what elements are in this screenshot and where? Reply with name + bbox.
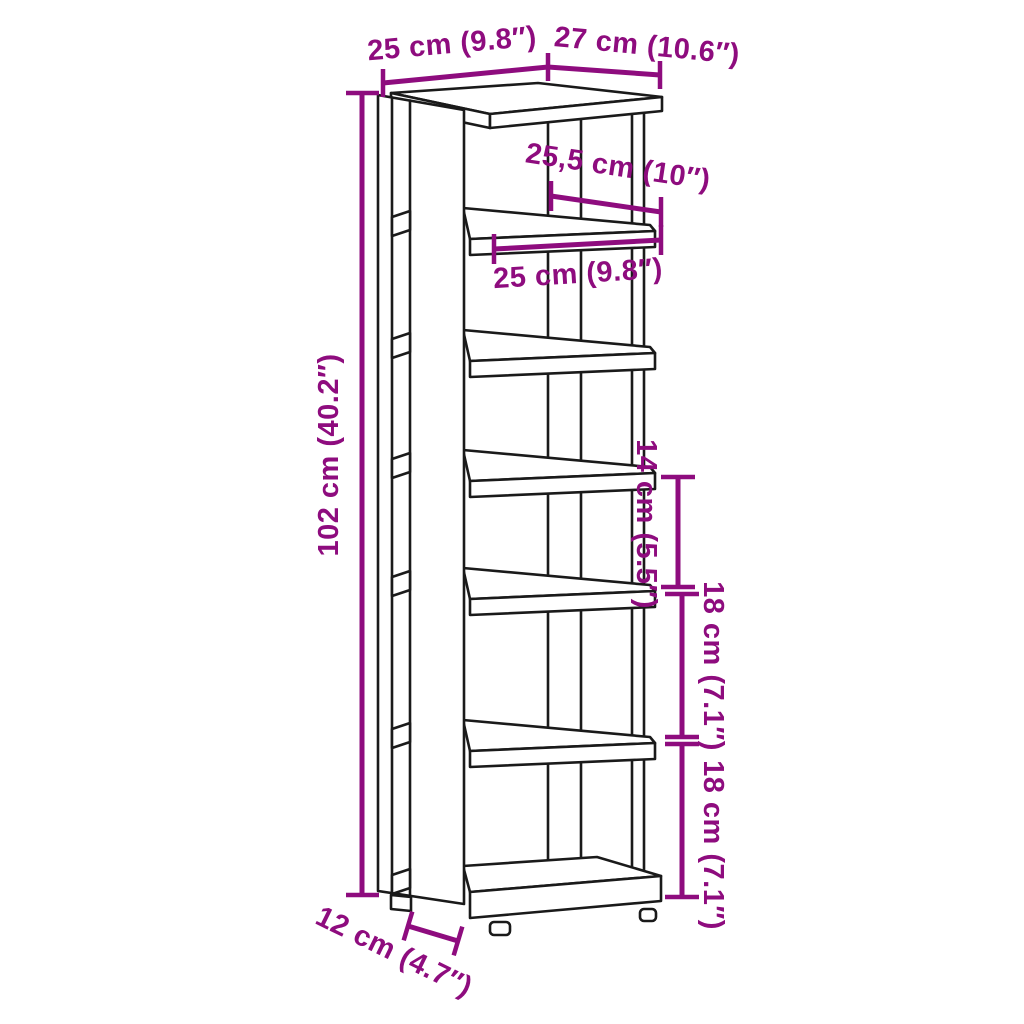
foot (490, 922, 510, 935)
diagram-page: 102 cm (40.2″) 25 cm (9.8″) 27 cm (10.6″… (0, 0, 1024, 1024)
bottom-shelf (463, 857, 661, 935)
shelf-side-tab (392, 571, 410, 596)
top-width-label: 25 cm (9.8″) (366, 21, 538, 68)
shelf-gap-bottom-label: 18 cm (7.1″) (697, 760, 729, 930)
dimension-overall-height: 102 cm (40.2″) (313, 93, 379, 895)
shelf (463, 568, 655, 615)
shelves (463, 208, 655, 767)
foot (391, 895, 411, 911)
dimension-side-panel-depth: 12 cm (4.7″) (311, 900, 478, 1003)
dimension-annotations: 102 cm (40.2″) 25 cm (9.8″) 27 cm (10.6″… (311, 21, 742, 1004)
side-panel-depth-label: 12 cm (4.7″) (311, 900, 478, 1003)
left-side-panel (378, 95, 464, 911)
shelf-side-tab (392, 453, 410, 478)
shelf-gap-middle-label: 18 cm (7.1″) (697, 581, 729, 751)
shelf-width-label: 25 cm (9.8″) (492, 253, 663, 295)
overall-height-label: 102 cm (40.2″) (313, 353, 345, 556)
dimension-shelf-depth: 25,5 cm (10″) (523, 137, 712, 227)
shelf (463, 450, 655, 497)
shelf-side-tab (392, 869, 410, 894)
top-depth-label: 27 cm (10.6″) (553, 21, 742, 71)
shelf-side-tab (392, 211, 410, 236)
shelf-side-tab (392, 723, 410, 748)
shoe-rack-dimension-diagram: 102 cm (40.2″) 25 cm (9.8″) 27 cm (10.6″… (0, 0, 1024, 1024)
dimension-shelf-gap-top: 14 cm (5.5″) (630, 439, 695, 609)
shelf (463, 720, 655, 767)
shelf-side-tab (392, 333, 410, 358)
shelf-gap-top-label: 14 cm (5.5″) (630, 439, 662, 609)
dimension-shelf-gap-middle: 18 cm (7.1″) (665, 581, 729, 751)
shoe-rack-line-drawing (378, 83, 662, 935)
dimension-shelf-gap-bottom: 18 cm (7.1″) (665, 744, 729, 930)
shelf (463, 330, 655, 377)
foot (640, 909, 656, 921)
